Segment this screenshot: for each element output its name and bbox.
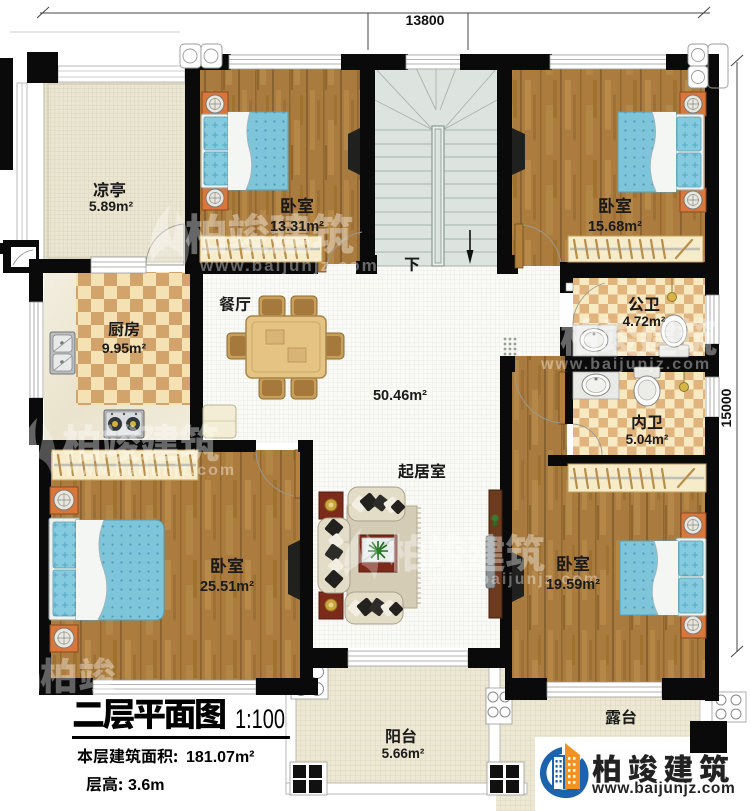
svg-text:3.6m: 3.6m	[128, 777, 164, 794]
svg-text:www.baijunjz.com: www.baijunjz.com	[591, 780, 735, 797]
svg-text:5.66m²: 5.66m²	[382, 746, 425, 761]
svg-text:www.baijunjz.com: www.baijunjz.com	[540, 356, 711, 373]
svg-text:50.46m²: 50.46m²	[373, 388, 427, 404]
svg-text:13.31m²: 13.31m²	[270, 219, 324, 235]
svg-text:4.72m²: 4.72m²	[623, 314, 666, 329]
svg-text:5.89m²: 5.89m²	[89, 198, 134, 214]
svg-text:25.51m²: 25.51m²	[200, 579, 254, 595]
svg-text:1:100: 1:100	[235, 704, 285, 734]
svg-text:15000: 15000	[718, 388, 734, 427]
svg-text:181.07m²: 181.07m²	[186, 749, 255, 766]
svg-text:www.baijunjz.com: www.baijunjz.com	[199, 256, 379, 275]
svg-text:15.68m²: 15.68m²	[588, 219, 642, 235]
svg-text:9.95m²: 9.95m²	[102, 340, 147, 356]
svg-text:5.04m²: 5.04m²	[626, 432, 669, 447]
svg-text:www.baijunjz.com: www.baijunjz.com	[65, 462, 236, 479]
svg-text:13800: 13800	[406, 12, 445, 28]
svg-text:19.59m²: 19.59m²	[546, 577, 600, 593]
